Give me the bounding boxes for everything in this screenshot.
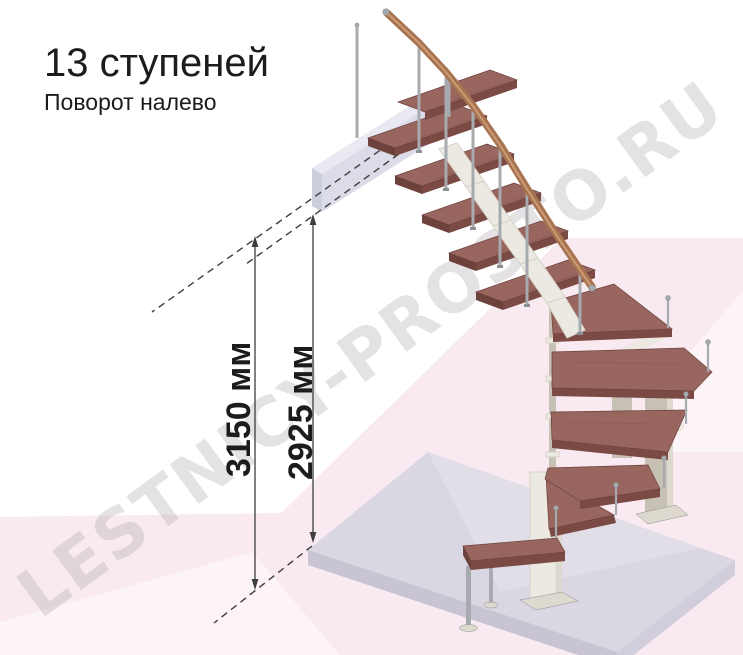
dimension-label-floor: 2925 мм [282,345,320,480]
platform-end-face [312,168,322,212]
handrail-top-cap [383,9,389,15]
bottom-step-leg-base [460,625,478,632]
spacer-post-ball [554,506,559,511]
handrail-end-cap [589,285,595,291]
apex-ring [546,452,559,457]
spacer-post-ball [706,340,711,345]
staircase-diagram-page: LESTNICY-PROSTO.RU [0,0,743,655]
page-subtitle: Поворот налево [44,89,217,115]
spacer-post-ball [666,296,671,301]
spacer-post-ball [684,392,689,397]
post-cap [355,23,359,27]
winder-tread-top [552,348,712,391]
spacer-post-ball [662,456,667,461]
bottom-step-leg [466,566,471,626]
staircase-diagram: LESTNICY-PROSTO.RU [0,0,743,655]
spacer-post-ball [614,483,619,488]
bottom-step-leg-base [484,602,498,608]
dimension-label-total: 3150 мм [220,342,258,477]
page-title: 13 ступеней [44,41,269,85]
